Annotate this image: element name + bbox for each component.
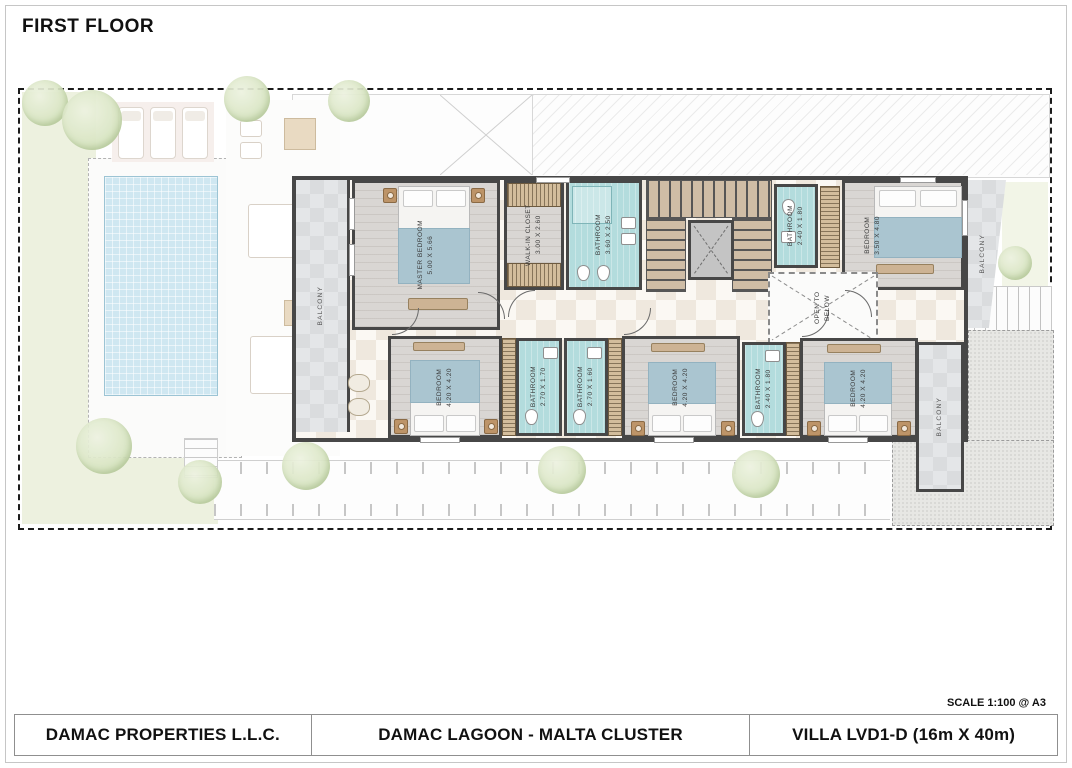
sun-lounger — [118, 107, 144, 159]
planter — [348, 398, 370, 416]
room-label: OPEN TO BELOW — [813, 282, 833, 334]
room-dims: 2.40 X 1.80 — [796, 205, 806, 246]
roof-skylight-cross — [440, 95, 532, 175]
pillow — [446, 415, 475, 432]
room-bedroom-bottom-right: BEDROOM 4.20 X 4.20 — [800, 338, 918, 438]
window — [962, 200, 968, 236]
bench — [413, 342, 465, 351]
window — [349, 198, 355, 230]
tree — [328, 80, 370, 122]
toilet — [751, 411, 764, 427]
wardrobe — [786, 342, 800, 436]
room-dims: 2.70 X 1.70 — [539, 366, 549, 407]
bench — [876, 264, 934, 274]
bench — [651, 343, 705, 352]
tree — [538, 446, 586, 494]
window — [536, 177, 570, 183]
floor-title: FIRST FLOOR — [22, 16, 154, 38]
window — [420, 437, 460, 443]
staircase-flight — [732, 218, 772, 292]
tree — [178, 460, 222, 504]
door-swing — [478, 292, 505, 319]
toilet — [525, 409, 538, 425]
villa-building: BALCONY MASTER BEDROOM 5.00 X 5.66 WA — [292, 176, 968, 442]
sun-lounger — [182, 107, 208, 159]
boardwalk-ties — [214, 504, 890, 516]
pillow — [920, 190, 956, 207]
room-dims: 4.20 X 4.20 — [445, 368, 455, 407]
nightstand — [484, 419, 498, 434]
pillow — [436, 190, 466, 207]
staircase-flight — [646, 218, 686, 292]
sink — [765, 350, 780, 362]
floor-plan-sheet: FIRST FLOOR BALCONY — [0, 0, 1072, 768]
title-block-project: DAMAC LAGOON - MALTA CLUSTER — [311, 715, 751, 755]
window — [828, 437, 868, 443]
bed — [874, 186, 962, 258]
toilet — [577, 265, 590, 281]
toilet — [573, 409, 586, 425]
nightstand — [721, 421, 735, 436]
gravel-area — [968, 330, 1054, 444]
room-bathroom-top-right: BATHROOM 2.40 X 1.80 — [774, 184, 818, 268]
patio-chair — [240, 120, 262, 137]
elevator-cross — [691, 223, 731, 277]
pillow — [403, 190, 433, 207]
sink — [621, 233, 636, 245]
room-walk-in-closet: WALK-IN CLOSET 3.00 X 2.60 — [504, 180, 564, 290]
pillow — [652, 415, 680, 432]
nightstand — [394, 419, 408, 434]
nightstand — [631, 421, 645, 436]
window — [900, 177, 936, 183]
tree — [732, 450, 780, 498]
title-block-villa: VILLA LVD1-D (16m X 40m) — [750, 715, 1057, 755]
room-label: WALK-IN CLOSET — [524, 196, 534, 274]
wardrobe — [502, 338, 516, 436]
pillow — [828, 415, 856, 432]
room-bedroom-bottom-left: BEDROOM 4.20 X 4.20 — [388, 336, 502, 438]
elevator — [688, 220, 734, 280]
sun-lounger — [150, 107, 176, 159]
toilet — [597, 265, 610, 281]
balcony-left: BALCONY — [296, 180, 350, 432]
nightstand — [471, 188, 485, 203]
room-label: BATHROOM — [594, 214, 604, 255]
pillow — [683, 415, 711, 432]
room-bathroom-bottom-mid: BATHROOM 2.70 X 1.60 — [564, 338, 608, 436]
scale-note: SCALE 1:100 @ A3 — [786, 697, 1046, 709]
room-dims: 4.20 X 4.20 — [681, 368, 691, 407]
tree — [224, 76, 270, 122]
sink — [587, 347, 602, 359]
roof-hatch — [532, 95, 1048, 175]
sink — [543, 347, 558, 359]
door-swing — [508, 290, 535, 317]
room-dims: 3.50 X 4.80 — [873, 216, 883, 255]
room-dims: 3.60 X 2.50 — [604, 214, 614, 255]
balcony-bottom-right: BALCONY — [916, 342, 964, 492]
room-label: BATHROOM — [576, 366, 586, 407]
room-dims: 2.70 X 1.60 — [586, 366, 596, 407]
room-label: BATHROOM — [786, 205, 796, 246]
room-label: BEDROOM — [863, 216, 873, 255]
room-dims: 2.40 X 1.80 — [764, 368, 774, 409]
patio-chair — [240, 142, 262, 159]
nightstand — [383, 188, 397, 203]
room-master-bathroom: BATHROOM 3.60 X 2.50 — [566, 180, 642, 290]
room-label: BALCONY — [316, 286, 326, 325]
room-label: MASTER BEDROOM — [416, 220, 426, 289]
door-swing — [624, 308, 651, 335]
pillow — [879, 190, 915, 207]
room-label: BALCONY — [935, 397, 945, 436]
bench — [827, 344, 881, 353]
title-block-company: DAMAC PROPERTIES L.L.C. — [15, 715, 311, 755]
room-dims: 4.20 X 4.20 — [859, 369, 869, 408]
window — [349, 244, 355, 276]
room-bedroom-bottom-mid: BEDROOM 4.20 X 4.20 — [622, 336, 740, 438]
pillow — [414, 415, 443, 432]
room-label: BEDROOM — [435, 368, 445, 407]
tree — [62, 90, 122, 150]
planter — [348, 374, 370, 392]
bed-blanket — [874, 217, 962, 258]
swimming-pool — [104, 176, 218, 396]
room-dims: 3.00 X 2.60 — [534, 196, 544, 274]
tree — [76, 418, 132, 474]
patio-table — [284, 118, 316, 150]
wardrobe — [820, 186, 840, 268]
room-label: BATHROOM — [754, 368, 764, 409]
nightstand — [807, 421, 821, 436]
nightstand — [897, 421, 911, 436]
tree — [998, 246, 1032, 280]
room-bathroom-bottom-left: BATHROOM 2.70 X 1.70 — [516, 338, 562, 436]
window — [654, 437, 694, 443]
sink — [621, 217, 636, 229]
door-swing — [392, 308, 419, 335]
room-label: BEDROOM — [671, 368, 681, 407]
pillow — [859, 415, 887, 432]
wardrobe — [608, 338, 622, 436]
room-bathroom-bottom-right: BATHROOM 2.40 X 1.80 — [742, 342, 786, 436]
title-block: DAMAC PROPERTIES L.L.C. DAMAC LAGOON - M… — [14, 714, 1058, 756]
room-label: BEDROOM — [849, 369, 859, 408]
room-label: BATHROOM — [529, 366, 539, 407]
room-dims: 5.00 X 5.66 — [426, 220, 436, 289]
room-label: BALCONY — [978, 234, 988, 273]
tree — [282, 442, 330, 490]
staircase-flight — [646, 180, 772, 218]
